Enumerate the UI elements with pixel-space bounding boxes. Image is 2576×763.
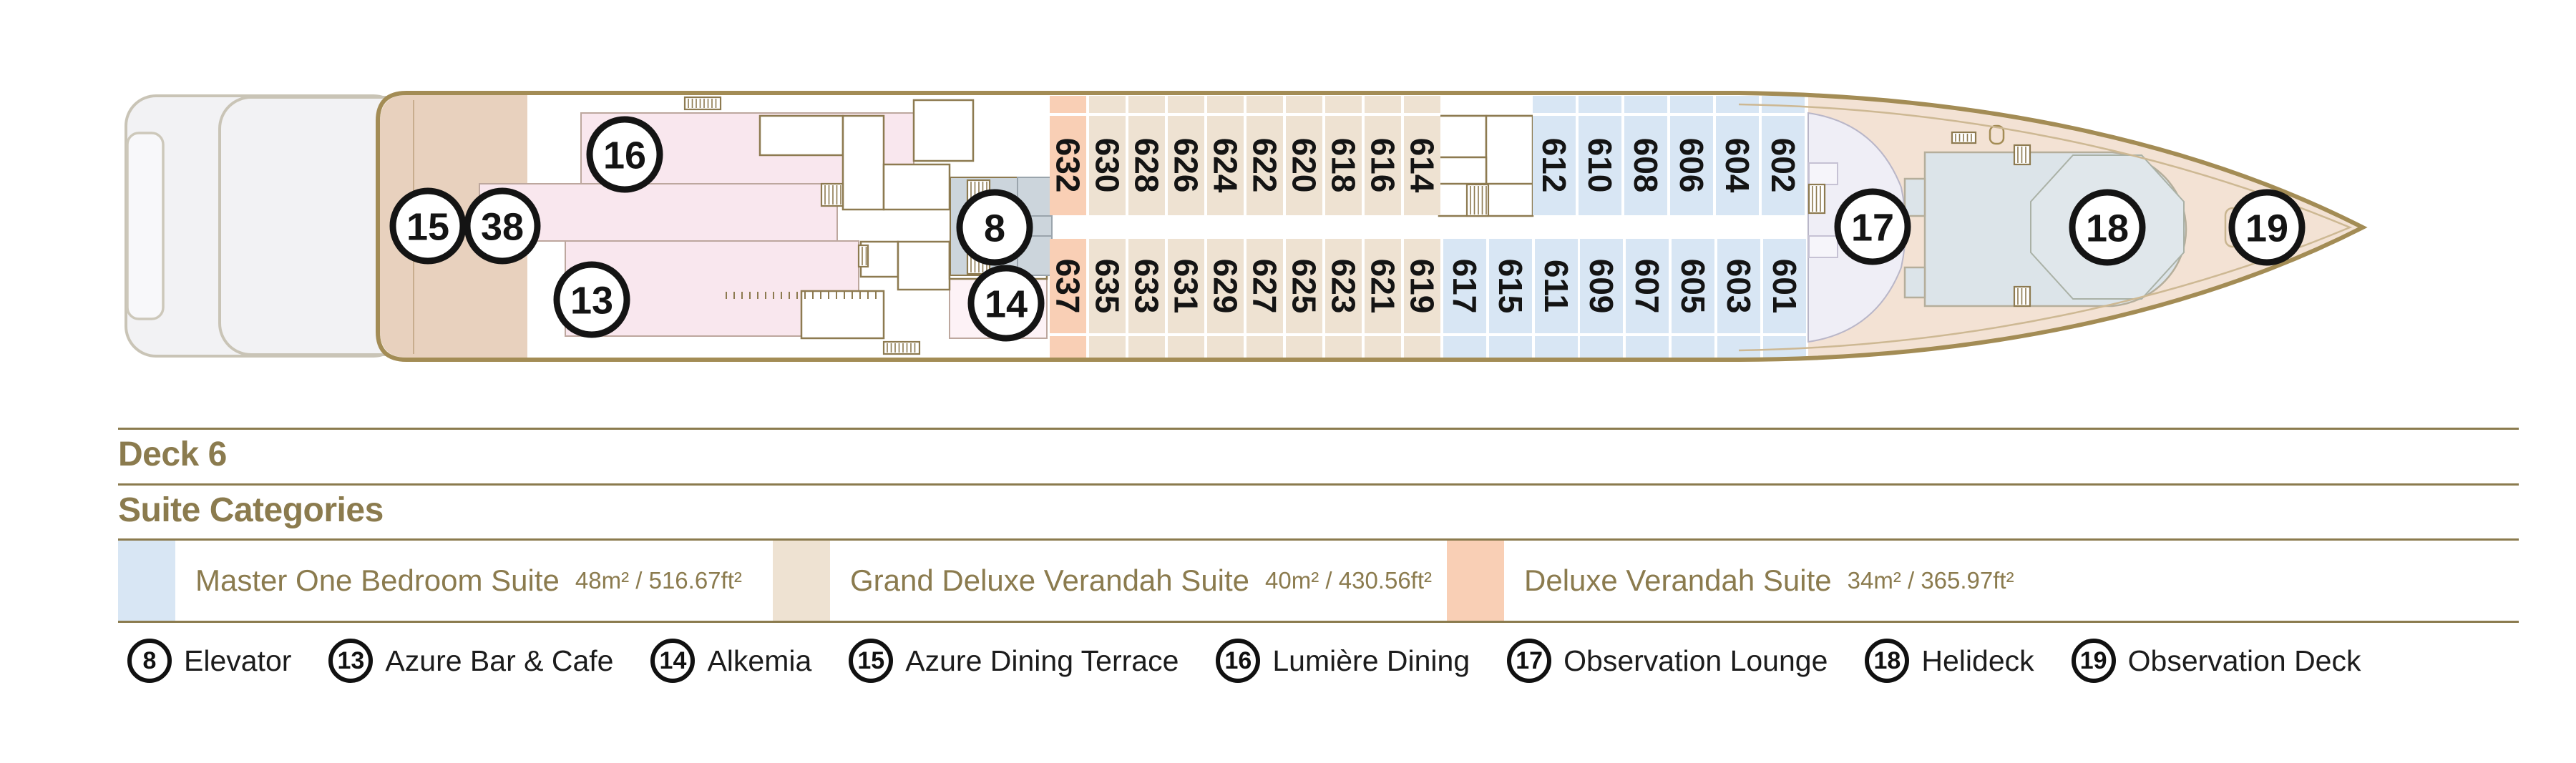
svg-text:602: 602 [1765, 138, 1802, 193]
svg-text:18: 18 [2086, 207, 2129, 250]
venue-label: Observation Lounge [1563, 644, 1828, 678]
svg-text:606: 606 [1673, 138, 1710, 193]
cabin-630: 630 [1088, 96, 1126, 215]
svg-text:614: 614 [1403, 138, 1440, 193]
venue-legend-item-8: 8Elevator [127, 639, 291, 683]
marker-15: 15 [393, 191, 463, 261]
svg-text:8: 8 [984, 207, 1005, 250]
suite-legend-grand: Grand Deluxe Verandah Suite 40m² / 430.5… [773, 541, 1432, 621]
svg-text:603: 603 [1720, 259, 1757, 314]
venue-label: Observation Deck [2128, 644, 2361, 678]
stairs-icon [821, 184, 843, 206]
cabin-604: 604 [1716, 96, 1759, 215]
svg-text:630: 630 [1088, 138, 1126, 193]
svg-text:612: 612 [1536, 138, 1573, 193]
suite-name: Grand Deluxe Verandah Suite [850, 563, 1249, 598]
suite-size: 34m² / 365.97ft² [1848, 567, 2014, 594]
stairs-icon [859, 245, 868, 267]
svg-text:625: 625 [1285, 259, 1322, 314]
svg-text:611: 611 [1538, 260, 1575, 312]
cabin-606: 606 [1670, 96, 1713, 215]
svg-text:617: 617 [1446, 259, 1483, 314]
divider [118, 621, 2519, 623]
cabin-609: 609 [1580, 239, 1623, 358]
stairs-icon [2014, 287, 2030, 306]
svg-text:616: 616 [1364, 138, 1401, 193]
svg-text:622: 622 [1246, 138, 1283, 193]
marker-38: 38 [467, 191, 537, 261]
cabin-628: 628 [1128, 96, 1165, 215]
stairs-icon [1809, 184, 1825, 213]
cabin-635: 635 [1088, 239, 1126, 358]
svg-text:621: 621 [1364, 259, 1401, 314]
svg-text:619: 619 [1403, 259, 1440, 314]
svg-text:624: 624 [1206, 138, 1244, 193]
suite-legend-deluxe: Deluxe Verandah Suite 34m² / 365.97ft² [1447, 541, 2014, 621]
cabin-625: 625 [1285, 239, 1322, 358]
venue-label: Alkemia [707, 644, 811, 678]
svg-text:615: 615 [1492, 259, 1529, 314]
venue-label: Lumière Dining [1272, 644, 1470, 678]
cabin-620: 620 [1285, 96, 1322, 215]
venue-legend-item-18: 18Helideck [1865, 639, 2034, 683]
cabin-619: 619 [1403, 239, 1440, 358]
venue-legend-item-15: 15Azure Dining Terrace [849, 639, 1179, 683]
cabin-614: 614 [1403, 96, 1440, 215]
venue-legend: 8Elevator13Azure Bar & Cafe14Alkemia15Az… [127, 639, 2361, 683]
marker-14: 14 [971, 268, 1041, 338]
svg-text:16: 16 [603, 134, 646, 177]
svg-text:635: 635 [1088, 259, 1126, 314]
venue-label: Azure Dining Terrace [905, 644, 1179, 678]
cabin-621: 621 [1364, 239, 1401, 358]
cabin-617: 617 [1443, 239, 1486, 358]
svg-text:19: 19 [2245, 207, 2288, 250]
cabin-622: 622 [1246, 96, 1283, 215]
svg-text:623: 623 [1324, 259, 1362, 314]
divider [118, 483, 2519, 486]
stairs-icon [1952, 132, 1976, 143]
svg-text:626: 626 [1167, 138, 1204, 193]
svg-text:633: 633 [1128, 259, 1165, 314]
cabin-633: 633 [1128, 239, 1165, 358]
cabin-611: 611 [1535, 239, 1578, 358]
svg-text:38: 38 [481, 205, 524, 248]
venue-label: Elevator [184, 644, 291, 678]
deck-plan-page: 6326306286266246226206186166146126106086… [0, 0, 2576, 763]
cabin-618: 618 [1324, 96, 1362, 215]
svg-text:14: 14 [985, 282, 1028, 325]
venue-legend-item-16: 16Lumière Dining [1216, 639, 1470, 683]
cabin-627: 627 [1246, 239, 1283, 358]
cabin-612: 612 [1533, 96, 1576, 215]
svg-text:609: 609 [1583, 259, 1620, 314]
cabin-637: 637 [1049, 239, 1086, 358]
stairs-icon [884, 342, 919, 354]
suite-name: Deluxe Verandah Suite [1524, 563, 1832, 598]
venue-number-badge: 19 [2072, 639, 2116, 683]
marker-19: 19 [2232, 192, 2302, 262]
deluxe-suite-swatch [1447, 541, 1504, 621]
suite-size: 40m² / 430.56ft² [1265, 567, 1432, 594]
ship-deck-plan: 6326306286266246226206186166146126106086… [0, 0, 2576, 400]
svg-text:627: 627 [1246, 259, 1283, 314]
svg-text:620: 620 [1285, 138, 1322, 193]
cabin-624: 624 [1206, 96, 1244, 215]
venue-number-badge: 17 [1507, 639, 1551, 683]
venue-label: Azure Bar & Cafe [385, 644, 613, 678]
cabin-615: 615 [1489, 239, 1532, 358]
svg-text:605: 605 [1674, 259, 1712, 314]
cabin-601: 601 [1763, 239, 1806, 358]
cabin-603: 603 [1717, 239, 1760, 358]
svg-text:618: 618 [1324, 138, 1362, 193]
cabin-607: 607 [1626, 239, 1669, 358]
cabin-623: 623 [1324, 239, 1362, 358]
cabin-631: 631 [1167, 239, 1204, 358]
svg-text:628: 628 [1128, 138, 1165, 193]
cabin-608: 608 [1624, 96, 1667, 215]
suite-legend-master: Master One Bedroom Suite 48m² / 516.67ft… [118, 541, 742, 621]
cabin-605: 605 [1672, 239, 1714, 358]
deck-title: Deck 6 [118, 435, 227, 474]
cabin-610: 610 [1579, 96, 1621, 215]
cabin-626: 626 [1167, 96, 1204, 215]
stairs-icon [1467, 184, 1488, 216]
marker-16: 16 [590, 119, 660, 189]
suite-size: 48m² / 516.67ft² [575, 567, 742, 594]
svg-text:604: 604 [1719, 138, 1756, 193]
svg-text:601: 601 [1766, 259, 1803, 314]
suite-name: Master One Bedroom Suite [195, 563, 560, 598]
venue-legend-item-13: 13Azure Bar & Cafe [328, 639, 613, 683]
divider [118, 428, 2519, 430]
svg-text:17: 17 [1851, 206, 1894, 249]
svg-text:15: 15 [406, 205, 449, 248]
venue-number-badge: 8 [127, 639, 172, 683]
svg-text:13: 13 [570, 279, 613, 322]
venue-legend-item-17: 17Observation Lounge [1507, 639, 1828, 683]
grand-suite-swatch [773, 541, 830, 621]
marker-8: 8 [960, 192, 1030, 262]
svg-text:610: 610 [1581, 138, 1619, 193]
venue-number-badge: 13 [328, 639, 373, 683]
svg-text:607: 607 [1629, 259, 1666, 314]
venue-legend-item-19: 19Observation Deck [2072, 639, 2361, 683]
venue-number-badge: 16 [1216, 639, 1260, 683]
suite-categories-title: Suite Categories [118, 491, 384, 530]
venue-number-badge: 15 [849, 639, 893, 683]
svg-text:608: 608 [1627, 138, 1664, 193]
svg-text:637: 637 [1049, 259, 1086, 314]
svg-text:629: 629 [1206, 259, 1244, 314]
svg-text:631: 631 [1167, 259, 1204, 314]
stairs-icon [685, 97, 721, 109]
stairs-icon [2014, 145, 2030, 164]
cabin-632: 632 [1049, 96, 1086, 215]
marker-18: 18 [2072, 192, 2142, 262]
master-suite-swatch [118, 541, 175, 621]
terrace-railing [726, 292, 884, 299]
venue-number-badge: 14 [650, 639, 695, 683]
venue-label: Helideck [1921, 644, 2034, 678]
cabin-616: 616 [1364, 96, 1401, 215]
venue-legend-item-14: 14Alkemia [650, 639, 811, 683]
svg-text:632: 632 [1049, 138, 1086, 193]
marker-17: 17 [1838, 192, 1908, 262]
cabin-602: 602 [1762, 96, 1805, 215]
venue-number-badge: 18 [1865, 639, 1909, 683]
cabin-629: 629 [1206, 239, 1244, 358]
marker-13: 13 [557, 265, 627, 335]
